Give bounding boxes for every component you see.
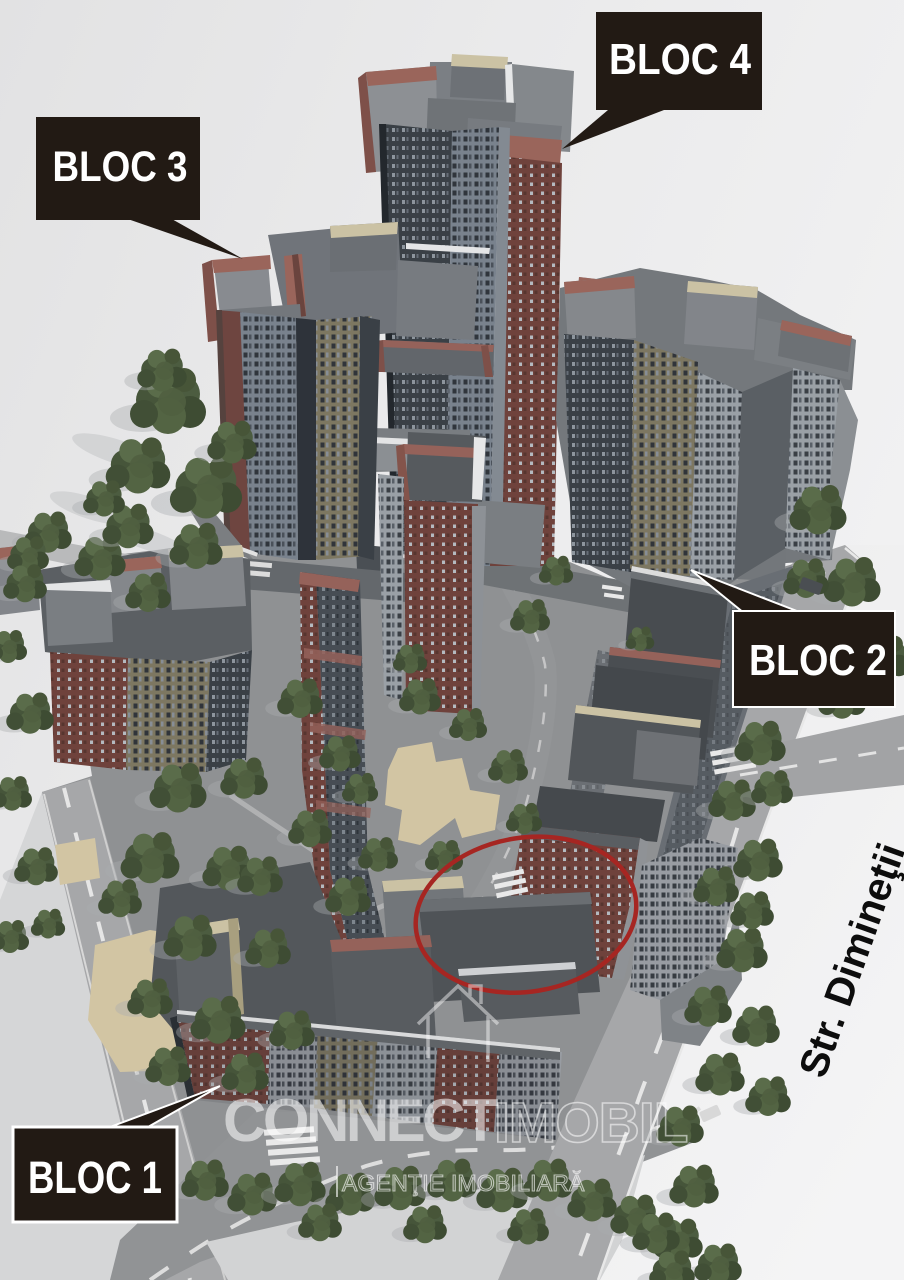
svg-text:AGENŢIE IMOBILIARĂ: AGENŢIE IMOBILIARĂ	[342, 1170, 585, 1196]
svg-text:IMOBIL: IMOBIL	[494, 1091, 688, 1155]
svg-text:BLOC 2: BLOC 2	[749, 636, 887, 685]
svg-text:BLOC 4: BLOC 4	[609, 35, 751, 84]
svg-text:BLOC 1: BLOC 1	[28, 1152, 162, 1203]
svg-text:BLOC 3: BLOC 3	[53, 143, 188, 191]
svg-text:CONNECT: CONNECT	[223, 1087, 498, 1154]
